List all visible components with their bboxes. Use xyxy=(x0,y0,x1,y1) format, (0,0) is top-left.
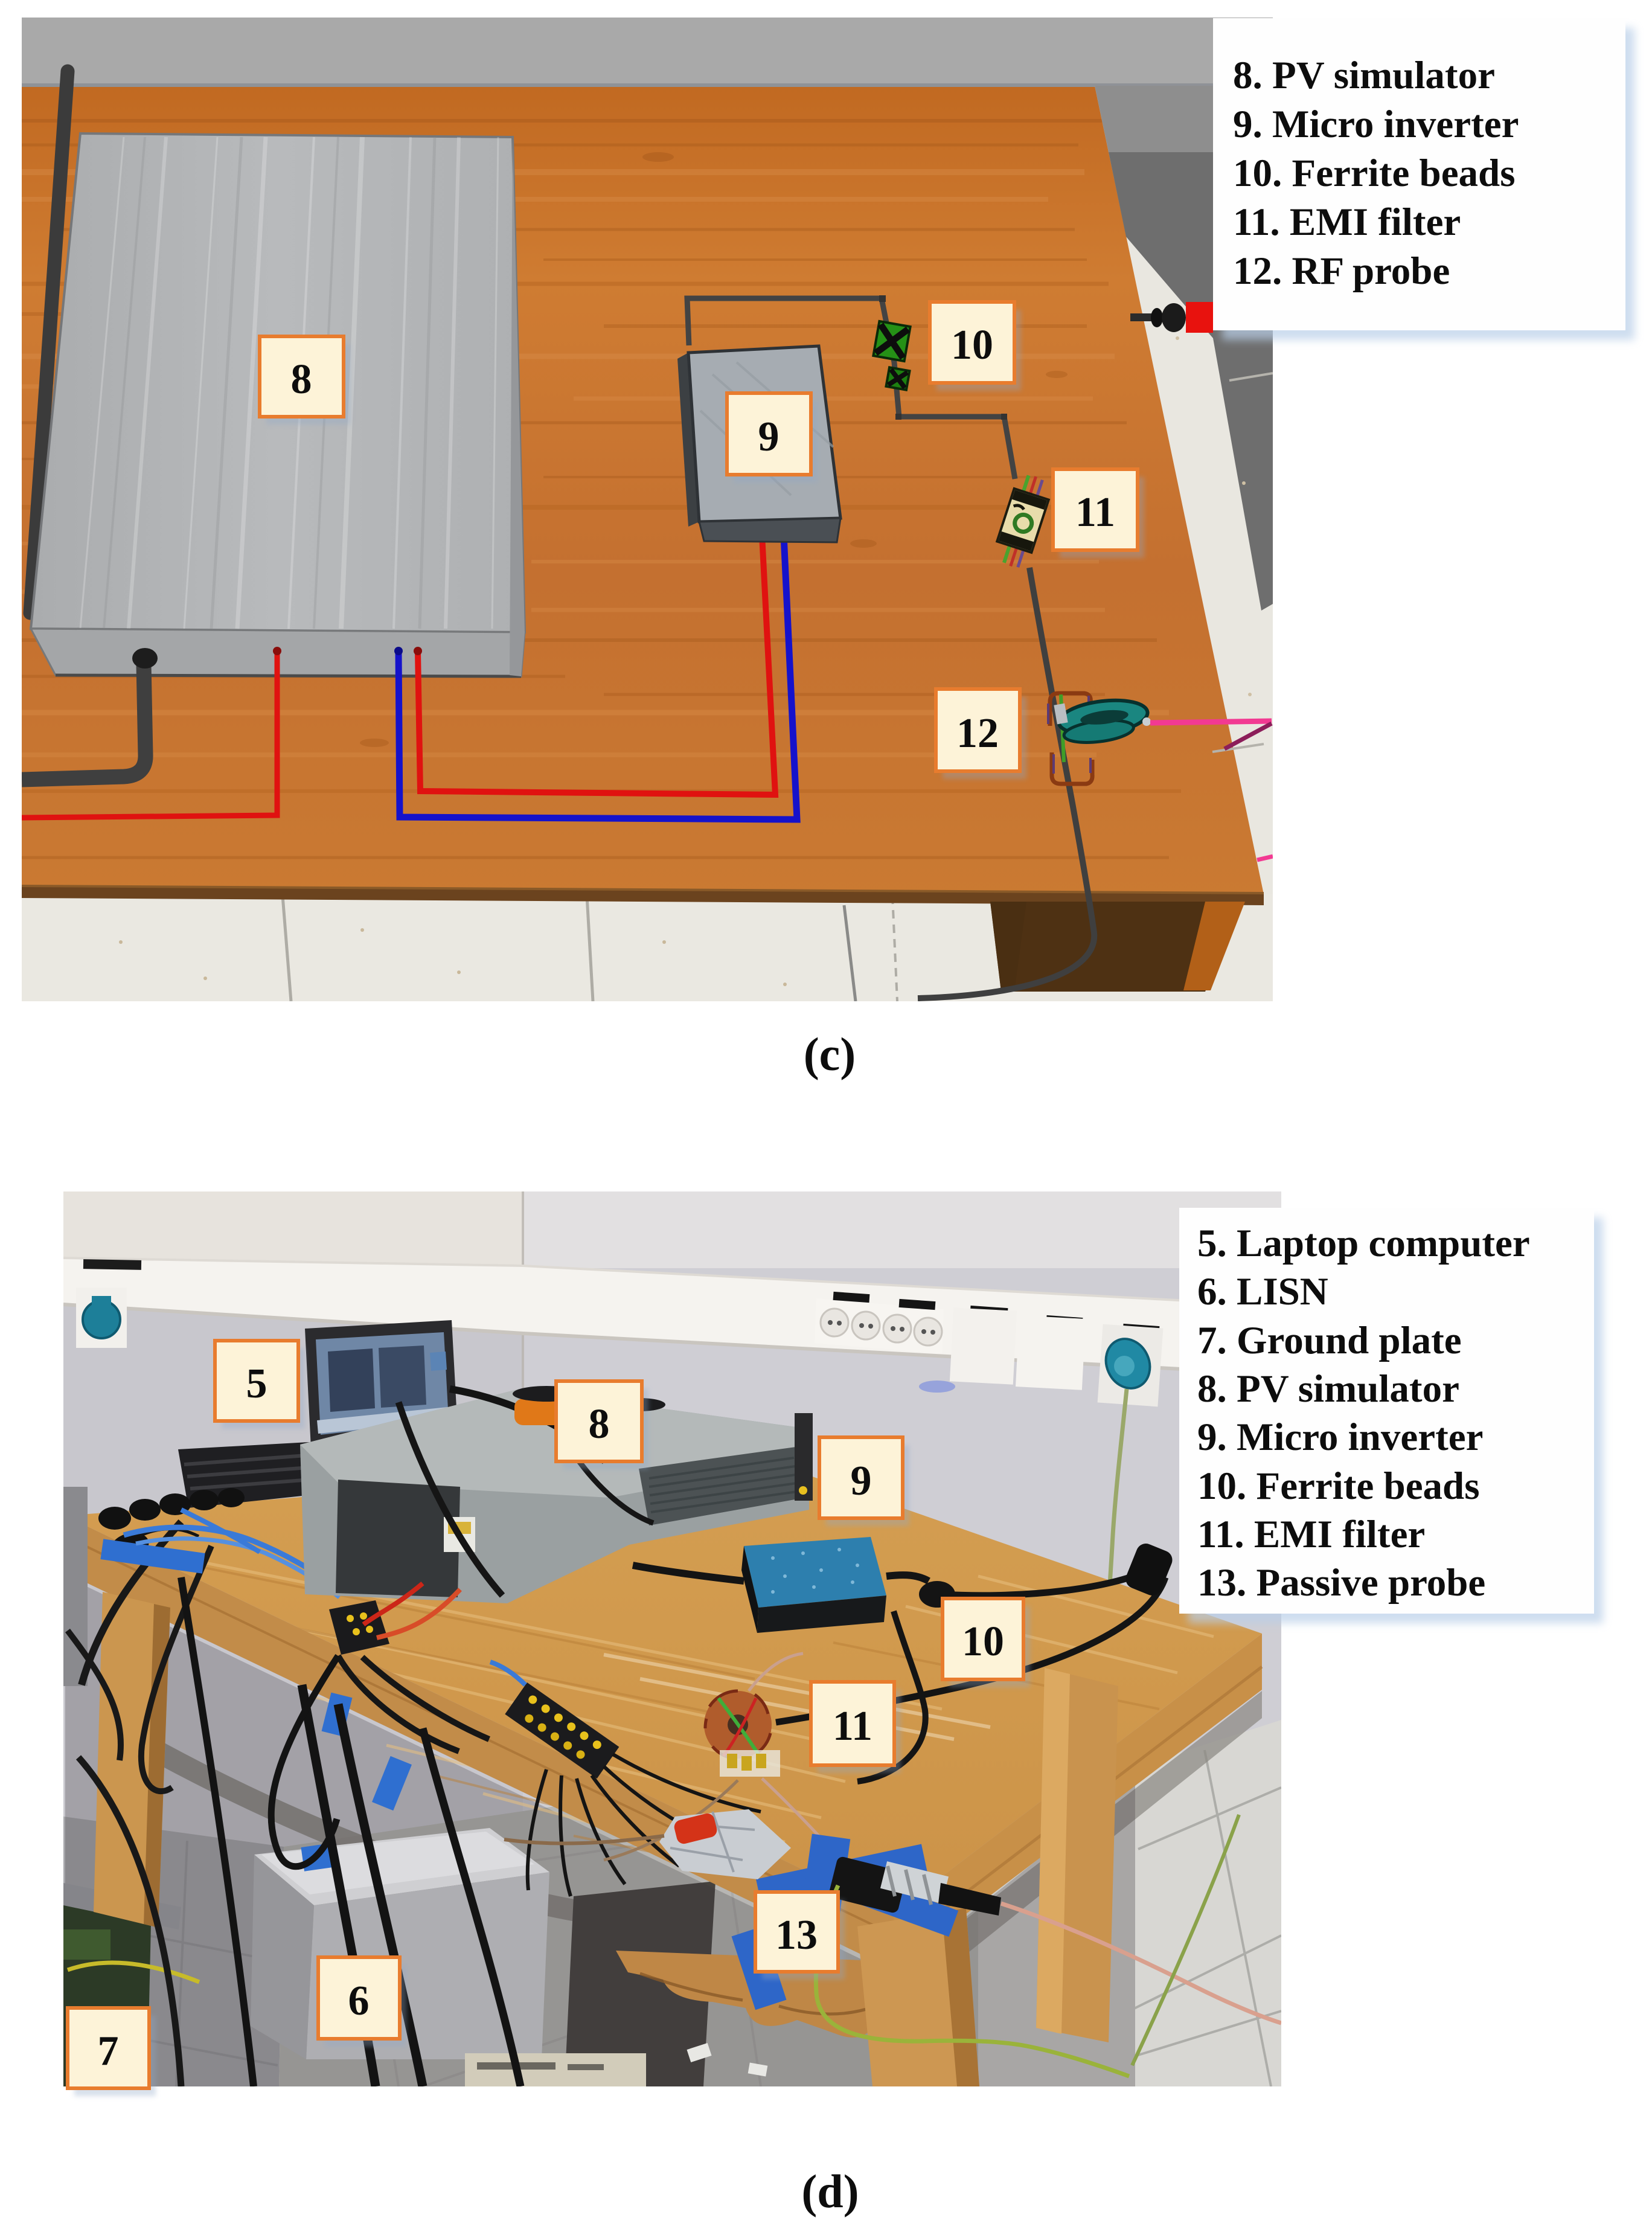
svg-text:8. PV simulator: 8. PV simulator xyxy=(1233,54,1495,97)
svg-text:11: 11 xyxy=(1075,489,1115,536)
svg-text:8. PV simulator: 8. PV simulator xyxy=(1197,1367,1459,1411)
svg-text:10. Ferrite beads: 10. Ferrite beads xyxy=(1197,1464,1480,1508)
svg-text:11. EMI filter: 11. EMI filter xyxy=(1197,1513,1425,1556)
svg-text:13. Passive probe: 13. Passive probe xyxy=(1197,1561,1485,1605)
svg-text:6: 6 xyxy=(348,1978,370,2024)
svg-text:9. Micro inverter: 9. Micro inverter xyxy=(1233,103,1519,146)
svg-text:(d): (d) xyxy=(801,2165,859,2218)
svg-text:11. EMI filter: 11. EMI filter xyxy=(1233,200,1461,244)
svg-text:5: 5 xyxy=(246,1361,267,1407)
svg-text:10. Ferrite beads: 10. Ferrite beads xyxy=(1233,152,1516,195)
svg-text:5. Laptop computer: 5. Laptop computer xyxy=(1197,1222,1530,1265)
svg-text:8: 8 xyxy=(589,1401,610,1448)
svg-text:6. LISN: 6. LISN xyxy=(1197,1270,1328,1313)
svg-text:12: 12 xyxy=(956,710,999,757)
svg-text:(c): (c) xyxy=(804,1028,856,1080)
svg-text:9: 9 xyxy=(758,414,780,460)
svg-text:8: 8 xyxy=(291,356,312,403)
svg-text:12. RF probe: 12. RF probe xyxy=(1233,249,1450,293)
svg-text:9: 9 xyxy=(851,1458,872,1504)
svg-text:10: 10 xyxy=(962,1618,1004,1665)
svg-text:9. Micro inverter: 9. Micro inverter xyxy=(1197,1416,1483,1459)
svg-text:7. Ground plate: 7. Ground plate xyxy=(1197,1319,1462,1362)
svg-text:13: 13 xyxy=(775,1912,818,1958)
svg-text:11: 11 xyxy=(833,1703,872,1749)
svg-text:10: 10 xyxy=(951,322,993,368)
svg-text:7: 7 xyxy=(98,2028,119,2074)
